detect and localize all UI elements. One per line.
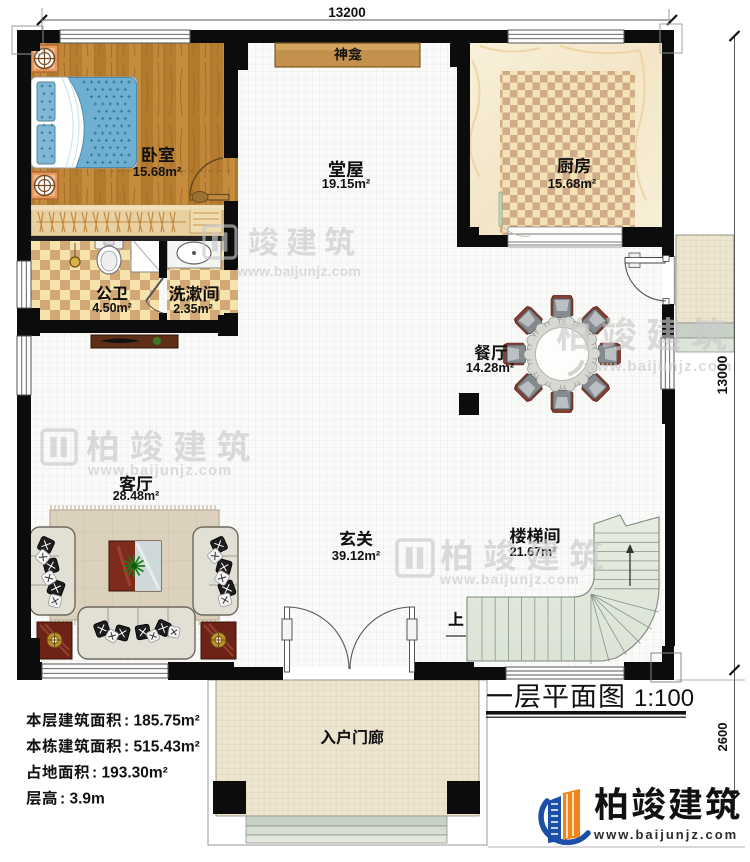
svg-text:1:100: 1:100 bbox=[634, 685, 694, 712]
svg-text:2.35m²: 2.35m² bbox=[173, 302, 213, 316]
svg-text:: 193.30m²: : 193.30m² bbox=[92, 765, 168, 782]
svg-text:www.baijunjz.com: www.baijunjz.com bbox=[236, 263, 361, 279]
svg-text:14.28m²: 14.28m² bbox=[466, 360, 515, 375]
svg-text:: 515.43m²: : 515.43m² bbox=[124, 739, 200, 756]
svg-text:28.48m²: 28.48m² bbox=[113, 489, 160, 503]
svg-text:: 3.9m: : 3.9m bbox=[60, 791, 105, 808]
svg-text:www.baijunjz.com: www.baijunjz.com bbox=[593, 827, 738, 842]
svg-text:15.68m²: 15.68m² bbox=[133, 164, 182, 179]
svg-text:13200: 13200 bbox=[328, 5, 366, 20]
svg-text:13000: 13000 bbox=[714, 355, 730, 394]
svg-text:: 185.75m²: : 185.75m² bbox=[124, 713, 200, 730]
svg-text:4.50m²: 4.50m² bbox=[92, 301, 132, 315]
svg-text:2600: 2600 bbox=[715, 723, 730, 752]
svg-text:19.15m²: 19.15m² bbox=[322, 176, 371, 191]
svg-text:39.12m²: 39.12m² bbox=[332, 548, 381, 563]
svg-text:www.baijunjz.com: www.baijunjz.com bbox=[583, 358, 733, 375]
svg-text:www.baijunjz.com: www.baijunjz.com bbox=[87, 463, 232, 479]
svg-text:www.baijunjz.com: www.baijunjz.com bbox=[439, 571, 580, 587]
svg-text:15.68m²: 15.68m² bbox=[548, 176, 597, 191]
